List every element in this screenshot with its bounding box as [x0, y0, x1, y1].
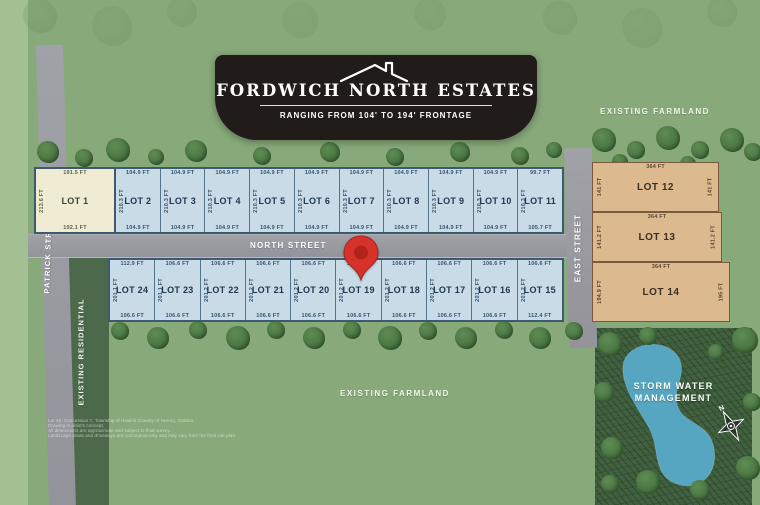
lot-label: LOT 10 [479, 196, 511, 206]
tree-icon [111, 322, 129, 340]
tree-icon [282, 2, 318, 38]
east-lot-column: 364 FT141 FTLOT 12141 FT364 FT141.2 FTLO… [592, 162, 732, 322]
lot-frontage-bottom: 106.6 FT [110, 313, 154, 319]
lot-15[interactable]: 106.6 FT201.2 FTLOT 15112.4 FT [518, 260, 562, 320]
tree-icon [253, 147, 271, 165]
lot-frontage-top: 106.6 FT [201, 261, 245, 267]
lot-9[interactable]: 104.9 FT210.3 FTLOT 9104.9 FT [429, 169, 474, 232]
lot-frontage-bottom: 104.9 FT [205, 225, 249, 231]
lot-frontage-bottom: 106.6 FT [155, 313, 199, 319]
lot-17[interactable]: 106.6 FT201.2 FTLOT 17106.6 FT [427, 260, 472, 320]
tree-icon [455, 327, 477, 349]
tree-icon [106, 138, 130, 162]
lot-frontage-top: 106.6 FT [291, 261, 335, 267]
tree-icon [92, 6, 132, 46]
lot-depth-left: 194.9 FT [597, 280, 603, 304]
tree-icon [529, 327, 551, 349]
tree-icon [622, 8, 662, 48]
tree-icon [601, 437, 623, 459]
lot-frontage-bottom: 104.9 FT [340, 225, 384, 231]
lot-frontage-bottom: 104.9 FT [295, 225, 339, 231]
lot-4[interactable]: 104.9 FT210.3 FTLOT 4104.9 FT [205, 169, 250, 232]
lot-label: LOT 16 [478, 285, 510, 295]
lot-frontage-bottom: 105.7 FT [518, 225, 562, 231]
development-banner: FORDWICH NORTH ESTATES RANGING FROM 104'… [215, 55, 537, 140]
lot-label: LOT 11 [524, 196, 556, 206]
lot-20[interactable]: 106.6 FT201.2 FTLOT 20106.6 FT [291, 260, 336, 320]
existing-farmland-top-label: EXISTING FARMLAND [600, 107, 710, 116]
lot-label: LOT 8 [393, 196, 420, 206]
tree-icon [743, 393, 760, 411]
lot-frontage-top: 104.9 FT [250, 170, 294, 176]
lot-frontage-top: 104.9 FT [340, 170, 384, 176]
tree-icon [167, 0, 197, 27]
lot-frontage-bottom: 192.1 FT [36, 225, 114, 231]
lot-frontage-top: 106.6 FT [472, 261, 516, 267]
lot-24[interactable]: 112.9 FT201.1 FTLOT 24106.6 FT [110, 260, 155, 320]
lot-frontage-bottom: 104.9 FT [429, 225, 473, 231]
lot-frontage-top: 104.9 FT [161, 170, 205, 176]
lot-width-top: 364 FT [593, 264, 729, 270]
banner-title: FORDWICH NORTH ESTATES [216, 81, 536, 100]
lot-depth-right: 195 FT [719, 283, 725, 302]
banner-divider [260, 105, 492, 106]
lot-frontage-top: 104.9 FT [295, 170, 339, 176]
lot-label: LOT 18 [388, 285, 420, 295]
tree-icon [185, 140, 207, 162]
tree-icon [419, 322, 437, 340]
lot-frontage-bottom: 106.6 FT [427, 313, 471, 319]
site-plan-canvas: NORTH STREET EAST STREET PATRICK STREET.… [0, 0, 760, 505]
tree-icon [378, 326, 402, 350]
lot-label: LOT 5 [258, 196, 285, 206]
lot-frontage-bottom: 104.9 FT [384, 225, 428, 231]
lot-2[interactable]: 104.9 FT210.3 FTLOT 2104.9 FT [116, 169, 161, 232]
lot-label: LOT 17 [433, 285, 465, 295]
lot-label: LOT 3 [169, 196, 196, 206]
storm-water-area: STORM WATER MANAGEMENT N [595, 328, 752, 505]
lot-frontage-bottom: 106.6 FT [201, 313, 245, 319]
tree-icon [708, 344, 724, 360]
lot-label: LOT 19 [342, 285, 374, 295]
lot-frontage-top: 104.9 FT [384, 170, 428, 176]
lot-depth-left: 141.2 FT [597, 225, 603, 249]
lot-label: LOT 23 [161, 285, 193, 295]
lot-label: LOT 6 [303, 196, 330, 206]
lot-label: LOT 15 [524, 285, 556, 295]
lot-8[interactable]: 104.9 FT210.3 FTLOT 8104.9 FT [384, 169, 429, 232]
tree-icon [565, 322, 583, 340]
lot-14[interactable]: 364 FT194.9 FTLOT 14195 FT [592, 262, 730, 322]
lot-13[interactable]: 364 FT141.2 FTLOT 13141.2 FT [592, 212, 722, 262]
left-green-strip [0, 0, 28, 505]
lot-frontage-bottom: 106.6 FT [382, 313, 426, 319]
lot-23[interactable]: 106.6 FT201.1 FTLOT 23106.6 FT [155, 260, 200, 320]
tree-icon [511, 147, 529, 165]
tree-icon [386, 148, 404, 166]
lot-frontage-bottom: 112.4 FT [518, 313, 562, 319]
lot-label: LOT 9 [437, 196, 464, 206]
lot-depth-right: 141.2 FT [711, 225, 717, 249]
lot-frontage-top: 106.6 FT [427, 261, 471, 267]
lot-width-top: 364 FT [593, 214, 721, 220]
lot-label: LOT 4 [214, 196, 241, 206]
tree-icon [23, 0, 57, 33]
tree-icon [592, 128, 616, 152]
lot-frontage-top: 104.9 FT [205, 170, 249, 176]
lot-18[interactable]: 106.6 FT201.2 FTLOT 18106.6 FT [382, 260, 427, 320]
lot-frontage-bottom: 106.6 FT [246, 313, 290, 319]
north-street-label: NORTH STREET [250, 241, 327, 250]
tree-icon [601, 475, 619, 493]
existing-residential-label: EXISTING RESIDENTIAL [77, 298, 86, 405]
existing-farmland-bottom-label: EXISTING FARMLAND [340, 389, 450, 398]
lot-label: LOT 2 [124, 196, 151, 206]
lot-frontage-top: 104.9 FT [429, 170, 473, 176]
lot-label: LOT 14 [643, 287, 680, 298]
lot-frontage-bottom: 104.9 FT [116, 225, 160, 231]
lot-1[interactable]: 191.5 FT213.6 FTLOT 1192.1 FT [36, 169, 116, 232]
lot-frontage-bottom: 106.6 FT [291, 313, 335, 319]
tree-icon [690, 480, 710, 500]
tree-icon [636, 470, 660, 494]
lot-label: LOT 22 [207, 285, 239, 295]
tree-icon [267, 321, 285, 339]
fine-print: Lot 49, Concession 7, Township of Howick… [48, 419, 258, 439]
tree-icon [736, 456, 760, 480]
lot-depth: 213.6 FT [39, 189, 45, 213]
tree-icon [147, 327, 169, 349]
lot-frontage-top: 106.6 FT [518, 261, 562, 267]
lot-row-south: 112.9 FT201.1 FTLOT 24106.6 FT106.6 FT20… [108, 258, 564, 322]
lot-label: LOT 21 [252, 285, 284, 295]
lot-frontage-top: 106.6 FT [382, 261, 426, 267]
lot-label: LOT 13 [639, 232, 676, 243]
lot-frontage-bottom: 104.9 FT [250, 225, 294, 231]
lot-frontage-bottom: 106.6 FT [472, 313, 516, 319]
lot-10[interactable]: 104.9 FT210.3 FTLOT 10104.9 FT [474, 169, 519, 232]
storm-water-line1: STORM WATER [595, 380, 752, 392]
tree-icon [75, 149, 93, 167]
tree-icon [639, 327, 657, 345]
lot-frontage-top: 106.6 FT [246, 261, 290, 267]
fine-print-line4: Landscape areas and driveways are concep… [48, 434, 258, 439]
compass-north-label: N [718, 405, 726, 414]
tree-icon [303, 327, 325, 349]
tree-icon [189, 321, 207, 339]
tree-icon [546, 142, 562, 158]
lot-frontage-bottom: 104.9 FT [161, 225, 205, 231]
lot-7[interactable]: 104.9 FT210.3 FTLOT 7104.9 FT [340, 169, 385, 232]
lot-3[interactable]: 104.9 FT210.3 FTLOT 3104.9 FT [161, 169, 206, 232]
lot-label: LOT 24 [116, 285, 148, 295]
lot-frontage-top: 112.9 FT [110, 261, 154, 267]
tree-icon [732, 327, 758, 353]
lot-depth-left: 141 FT [597, 178, 603, 197]
lot-frontage-top: 106.6 FT [155, 261, 199, 267]
lot-depth-right: 141 FT [708, 178, 714, 197]
tree-icon [707, 0, 737, 27]
banner-roof-icon [333, 59, 419, 83]
lot-frontage-bottom: 104.9 FT [474, 225, 518, 231]
lot-frontage-top: 104.9 FT [116, 170, 160, 176]
tree-icon [720, 128, 744, 152]
lot-frontage-bottom: 106.6 FT [336, 313, 380, 319]
lot-label: LOT 7 [348, 196, 375, 206]
tree-icon [594, 382, 614, 402]
lot-22[interactable]: 106.6 FT201.2 FTLOT 22106.6 FT [201, 260, 246, 320]
lot-width-top: 364 FT [593, 164, 718, 170]
lot-6[interactable]: 104.9 FT210.3 FTLOT 6104.9 FT [295, 169, 340, 232]
tree-icon [543, 1, 577, 35]
tree-icon [744, 143, 760, 161]
lot-label: LOT 20 [297, 285, 329, 295]
tree-icon [598, 332, 622, 356]
tree-icon [450, 142, 470, 162]
lot-16[interactable]: 106.6 FT201.2 FTLOT 16106.6 FT [472, 260, 517, 320]
lot-frontage-top: 191.5 FT [36, 170, 114, 176]
tree-icon [148, 149, 164, 165]
lot-label: LOT 1 [61, 196, 88, 206]
lot-label: LOT 12 [637, 182, 674, 193]
tree-icon [627, 141, 645, 159]
lot-12[interactable]: 364 FT141 FTLOT 12141 FT [592, 162, 719, 212]
tree-icon [414, 0, 446, 30]
lot-frontage-top: 104.9 FT [474, 170, 518, 176]
location-pin-icon[interactable] [341, 234, 381, 282]
tree-icon [37, 141, 59, 163]
tree-icon [495, 321, 513, 339]
lot-row-north: 191.5 FT213.6 FTLOT 1192.1 FT104.9 FT210… [34, 167, 564, 234]
east-street-label: EAST STREET [574, 214, 583, 282]
tree-icon [226, 326, 250, 350]
lot-frontage-top: 99.7 FT [518, 170, 562, 176]
tree-icon [691, 141, 709, 159]
tree-icon [343, 321, 361, 339]
banner-subtitle: RANGING FROM 104' TO 194' FRONTAGE [280, 111, 472, 120]
tree-icon [656, 126, 680, 150]
lot-5[interactable]: 104.9 FT210.3 FTLOT 5104.9 FT [250, 169, 295, 232]
lot-11[interactable]: 99.7 FT210.3 FTLOT 11105.7 FT [518, 169, 562, 232]
tree-icon [320, 142, 340, 162]
lot-21[interactable]: 106.6 FT201.2 FTLOT 21106.6 FT [246, 260, 291, 320]
